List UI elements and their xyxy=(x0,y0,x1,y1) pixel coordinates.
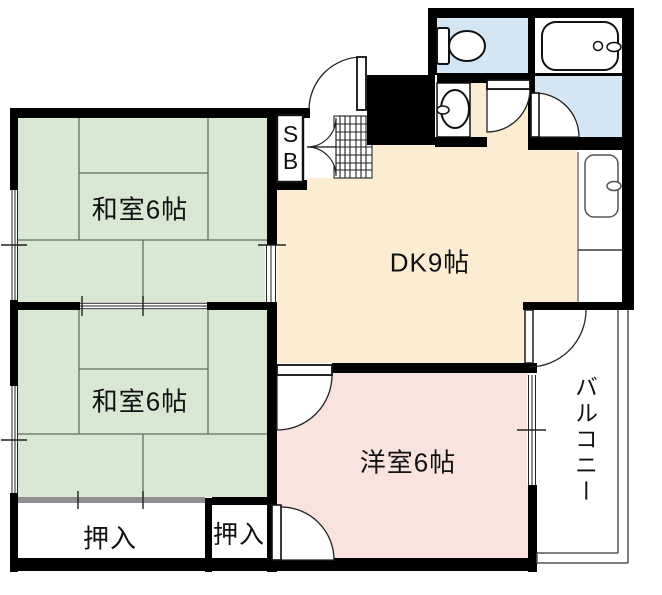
bathtub-icon xyxy=(542,22,621,70)
washroom-door-leaf xyxy=(487,80,530,89)
closet-door-leaf xyxy=(272,505,281,560)
balcony-label: バルコニー xyxy=(573,375,596,505)
balcony-door-leaf xyxy=(525,310,533,363)
bath-door-leaf xyxy=(531,93,539,137)
cabinet-door-icon xyxy=(307,118,336,147)
entrance-door-leaf xyxy=(357,57,366,110)
apartment-floorplan: 和室6帖 和室6帖 DK9帖 洋室6帖 押入 押入 SB バルコニー xyxy=(0,0,662,595)
washitsu1-label: 和室6帖 xyxy=(92,190,188,227)
closet-large-label: 押入 xyxy=(83,519,137,556)
cabinet-door-icon xyxy=(307,147,336,176)
shoe-box-label: SB xyxy=(279,121,302,175)
western-room-door-leaf xyxy=(277,365,332,375)
floorplan-drawing xyxy=(0,0,662,595)
toilet-icon xyxy=(437,28,485,64)
washitsu2-label: 和室6帖 xyxy=(92,382,188,419)
entrance-tile-icon xyxy=(334,116,372,178)
washbasin-icon xyxy=(437,83,470,137)
dk-label: DK9帖 xyxy=(390,243,471,280)
pipe-shaft xyxy=(367,75,435,145)
closet-small-label: 押入 xyxy=(213,515,265,551)
yoshitsu-label: 洋室6帖 xyxy=(360,443,456,480)
